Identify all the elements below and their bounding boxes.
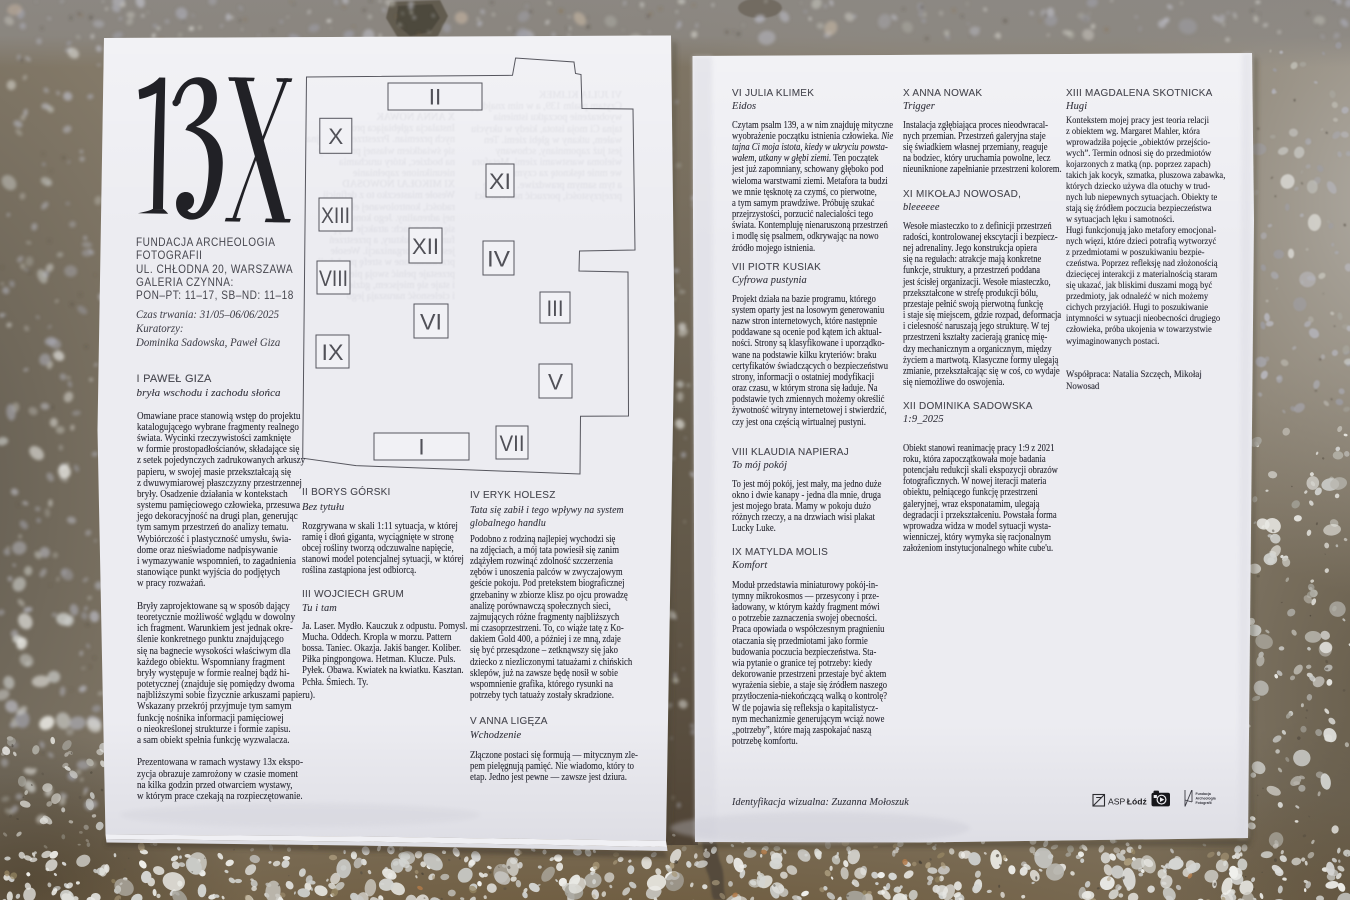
svg-text:Archeologia: Archeologia bbox=[1196, 797, 1216, 801]
svg-text:Fotografii: Fotografii bbox=[1196, 801, 1212, 805]
svg-text:IX: IX bbox=[322, 340, 344, 365]
svg-text:ASPŁódź: ASPŁódź bbox=[1108, 797, 1147, 807]
svg-text:I: I bbox=[418, 435, 424, 460]
svg-text:IV: IV bbox=[487, 247, 510, 272]
svg-text:VIII: VIII bbox=[319, 266, 348, 291]
svg-text:II: II bbox=[429, 85, 442, 110]
svg-text:VI: VI bbox=[420, 310, 442, 335]
svg-text:VII: VII bbox=[500, 431, 525, 456]
svg-text:III: III bbox=[547, 296, 564, 321]
svg-text:X: X bbox=[328, 124, 343, 149]
svg-text:XI: XI bbox=[489, 169, 511, 194]
svg-text:XII: XII bbox=[412, 234, 439, 259]
svg-text:Fundacja: Fundacja bbox=[1196, 792, 1211, 796]
svg-text:V: V bbox=[548, 370, 563, 395]
svg-text:XIII: XIII bbox=[321, 203, 350, 228]
